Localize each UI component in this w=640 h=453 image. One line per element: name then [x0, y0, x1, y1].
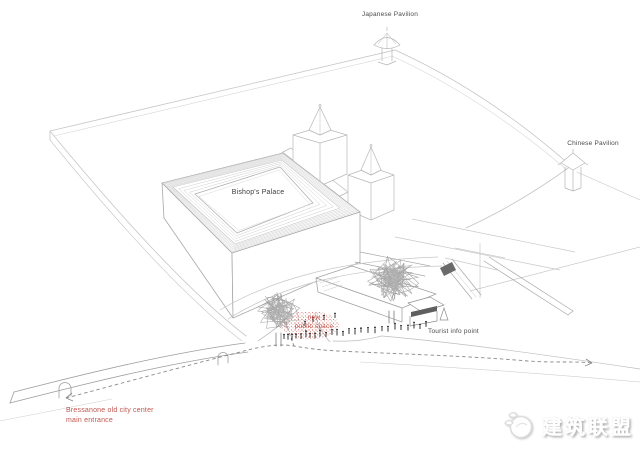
brand-logo: 建筑联盟 [502, 408, 634, 442]
chinese-pavilion-structure [558, 149, 588, 191]
chinese-pavilion-label: Chinese Pavilion [548, 140, 638, 148]
tourist-info-point-label: Tourist info point [428, 328, 479, 336]
new-public-space-line2: public space [264, 323, 364, 332]
axonometric-drawing [0, 0, 640, 453]
japanese-pavilion-label: Japanese Pavilion [330, 11, 450, 19]
logo-text: 建筑联盟 [542, 411, 634, 440]
entrance-line2: main entrance [66, 416, 154, 426]
new-public-space-line1: new [264, 314, 364, 323]
logo-icon [502, 408, 536, 442]
bishops-palace-label: Bishop's Palace [208, 189, 308, 197]
entrance-line1: Bressanone old city center [66, 406, 154, 416]
new-public-space-label: new public space [264, 314, 364, 331]
rear-roads [395, 219, 640, 298]
entrance-label: Bressanone old city center main entrance [66, 406, 154, 425]
site-diagram: Japanese Pavilion Chinese Pavilion Bisho… [0, 0, 640, 453]
